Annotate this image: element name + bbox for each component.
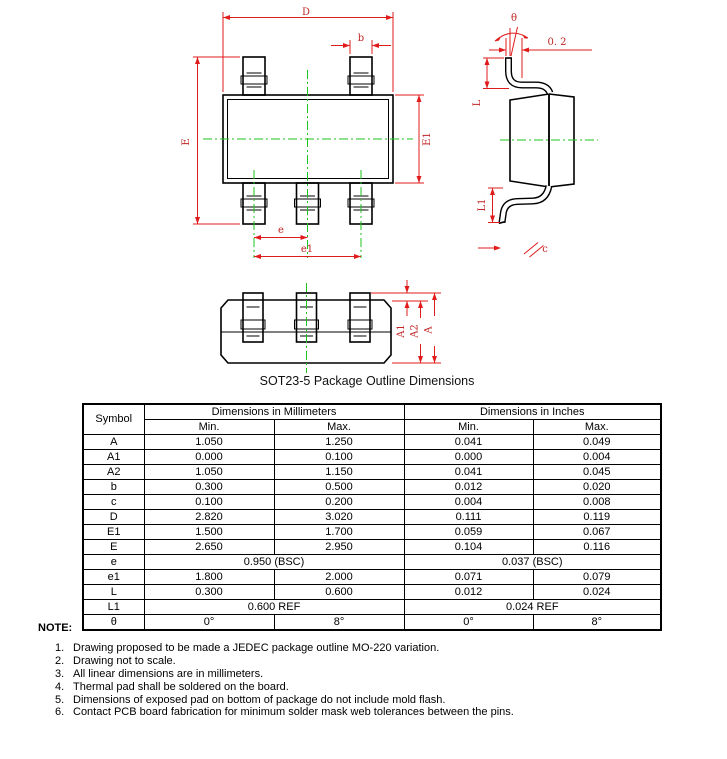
cell: 0.049: [533, 435, 661, 450]
list-item: 4. Thermal pad shall be soldered on the …: [38, 681, 698, 694]
cell-symbol: E1: [83, 525, 144, 540]
cell: 0.100: [274, 450, 404, 465]
cell: 0.024: [533, 585, 661, 600]
cell: 1.500: [144, 525, 274, 540]
cell-span: 0.600 REF: [144, 600, 404, 615]
cell: 1.050: [144, 435, 274, 450]
dimension-A: A: [424, 293, 438, 363]
dimension-A2: A2: [410, 301, 424, 363]
dim-label-b: b: [358, 33, 364, 44]
cell: 0.012: [404, 585, 533, 600]
cell-symbol: E: [83, 540, 144, 555]
dim-label-A1: A1: [396, 324, 407, 339]
dim-label-e1: e1: [301, 244, 313, 255]
cell: 2.000: [274, 570, 404, 585]
cell: 0.004: [533, 450, 661, 465]
cell: 0.300: [144, 585, 274, 600]
dim-label-offset: 0. 2: [547, 37, 566, 48]
cell-symbol: D: [83, 510, 144, 525]
top-view: D b E: [181, 7, 433, 259]
cell: 0.008: [533, 495, 661, 510]
col-header-max: Max.: [533, 420, 661, 435]
list-item: 2. Drawing not to scale.: [38, 655, 698, 668]
col-header-inch: Dimensions in Inches: [404, 404, 661, 420]
dimension-offset: 0. 2: [489, 37, 592, 78]
dimension-L1: L1: [477, 188, 503, 223]
lead-bottom: [499, 186, 549, 223]
cell: 0.045: [533, 465, 661, 480]
cell: 1.700: [274, 525, 404, 540]
table-row: L1 0.600 REF 0.024 REF: [83, 600, 661, 615]
note-text: Contact PCB board fabrication for minimu…: [73, 706, 698, 719]
dimension-b: b: [331, 33, 391, 54]
list-item: 5. Dimensions of exposed pad on bottom o…: [38, 694, 698, 707]
cell: 0.012: [404, 480, 533, 495]
cell-symbol: A2: [83, 465, 144, 480]
cell: 0.067: [533, 525, 661, 540]
cell: 1.050: [144, 465, 274, 480]
table-row: L 0.300 0.600 0.012 0.024: [83, 585, 661, 600]
datasheet-page: D b E: [0, 0, 727, 759]
cell: 0.071: [404, 570, 533, 585]
cell-symbol: c: [83, 495, 144, 510]
note-number: 6.: [55, 706, 73, 719]
dimension-e1: e1: [254, 244, 361, 259]
cell: 0.119: [533, 510, 661, 525]
note-number: 2.: [55, 655, 73, 668]
cell: 0.500: [274, 480, 404, 495]
list-item: 6. Contact PCB board fabrication for min…: [38, 706, 698, 719]
cell: 2.820: [144, 510, 274, 525]
dim-label-D: D: [302, 7, 310, 18]
cell: 1.800: [144, 570, 274, 585]
col-header-min: Min.: [404, 420, 533, 435]
pin: [348, 57, 374, 95]
col-header-max: Max.: [274, 420, 404, 435]
cell: 0.200: [274, 495, 404, 510]
cell-span: 0.950 (BSC): [144, 555, 404, 570]
cell: 0.004: [404, 495, 533, 510]
dimension-e: e: [254, 225, 308, 240]
cell: 0.020: [533, 480, 661, 495]
cell: 0.116: [533, 540, 661, 555]
cell: 0.041: [404, 465, 533, 480]
note-text: All linear dimensions are in millimeters…: [73, 668, 698, 681]
table-row: E 2.650 2.950 0.104 0.116: [83, 540, 661, 555]
dimension-E1: E1: [395, 95, 433, 183]
cell-symbol: L1: [83, 600, 144, 615]
cell: 0.600: [274, 585, 404, 600]
cell: 0.000: [144, 450, 274, 465]
dimension-D: D: [223, 7, 393, 92]
dim-label-e: e: [278, 225, 284, 236]
cell-symbol: A1: [83, 450, 144, 465]
note-text: Thermal pad shall be soldered on the boa…: [73, 681, 698, 694]
cell: 0.000: [404, 450, 533, 465]
cell-span: 0.037 (BSC): [404, 555, 661, 570]
table-row: b 0.300 0.500 0.012 0.020: [83, 480, 661, 495]
table-row: E1 1.500 1.700 0.059 0.067: [83, 525, 661, 540]
note-number: 3.: [55, 668, 73, 681]
table-row: e1 1.800 2.000 0.071 0.079: [83, 570, 661, 585]
dim-label-c: c: [542, 244, 548, 255]
centerlines: [203, 70, 413, 258]
notes-title: NOTE:: [38, 622, 698, 634]
note-text: Drawing proposed to be made a JEDEC pack…: [73, 642, 698, 655]
cell: 2.650: [144, 540, 274, 555]
package-outline-drawing: D b E: [0, 0, 727, 400]
table-header-row: Symbol Dimensions in Millimeters Dimensi…: [83, 404, 661, 420]
note-number: 5.: [55, 694, 73, 707]
cell-symbol: A: [83, 435, 144, 450]
front-view: A1 A2 A: [221, 280, 441, 373]
cell: 2.950: [274, 540, 404, 555]
cell-symbol: e1: [83, 570, 144, 585]
drawing-caption: SOT23-5 Package Outline Dimensions: [207, 374, 527, 388]
side-view: θ 0. 2 L: [472, 13, 598, 257]
col-header-min: Min.: [144, 420, 274, 435]
table-subheader-row: Min. Max. Min. Max.: [83, 420, 661, 435]
dim-label-A: A: [424, 326, 435, 335]
table-row: A 1.050 1.250 0.041 0.049: [83, 435, 661, 450]
dim-label-A2: A2: [410, 324, 421, 339]
note-text: Drawing not to scale.: [73, 655, 698, 668]
list-item: 3. All linear dimensions are in millimet…: [38, 668, 698, 681]
dim-label-E1: E1: [422, 132, 433, 146]
cell: 0.079: [533, 570, 661, 585]
pin: [241, 57, 267, 95]
cell: 0.041: [404, 435, 533, 450]
table-row: c 0.100 0.200 0.004 0.008: [83, 495, 661, 510]
table-row: e 0.950 (BSC) 0.037 (BSC): [83, 555, 661, 570]
note-number: 4.: [55, 681, 73, 694]
dim-label-L1: L1: [477, 198, 488, 211]
table-row: A1 0.000 0.100 0.000 0.004: [83, 450, 661, 465]
table-row: D 2.820 3.020 0.111 0.119: [83, 510, 661, 525]
dimension-A1: A1: [396, 280, 410, 339]
notes-section: NOTE: 1. Drawing proposed to be made a J…: [38, 622, 698, 719]
dimensions-table: Symbol Dimensions in Millimeters Dimensi…: [82, 403, 662, 631]
cell-symbol: L: [83, 585, 144, 600]
dimension-L: L: [472, 58, 509, 106]
cell: 0.100: [144, 495, 274, 510]
cell: 0.300: [144, 480, 274, 495]
dim-label-E: E: [181, 138, 192, 145]
note-number: 1.: [55, 642, 73, 655]
dim-label-theta: θ: [511, 13, 517, 24]
col-header-mm: Dimensions in Millimeters: [144, 404, 404, 420]
cell-symbol: e: [83, 555, 144, 570]
col-header-symbol: Symbol: [83, 404, 144, 435]
cell-symbol: b: [83, 480, 144, 495]
cell: 1.150: [274, 465, 404, 480]
cell: 0.059: [404, 525, 533, 540]
cell: 3.020: [274, 510, 404, 525]
lead-top: [505, 58, 550, 93]
dim-label-L: L: [472, 99, 483, 106]
dimension-E: E: [181, 57, 240, 224]
cell-span: 0.024 REF: [404, 600, 661, 615]
cell: 0.104: [404, 540, 533, 555]
list-item: 1. Drawing proposed to be made a JEDEC p…: [38, 642, 698, 655]
cell: 1.250: [274, 435, 404, 450]
cell: 0.111: [404, 510, 533, 525]
dimension-c: c: [478, 243, 548, 258]
note-text: Dimensions of exposed pad on bottom of p…: [73, 694, 698, 707]
table-row: A2 1.050 1.150 0.041 0.045: [83, 465, 661, 480]
